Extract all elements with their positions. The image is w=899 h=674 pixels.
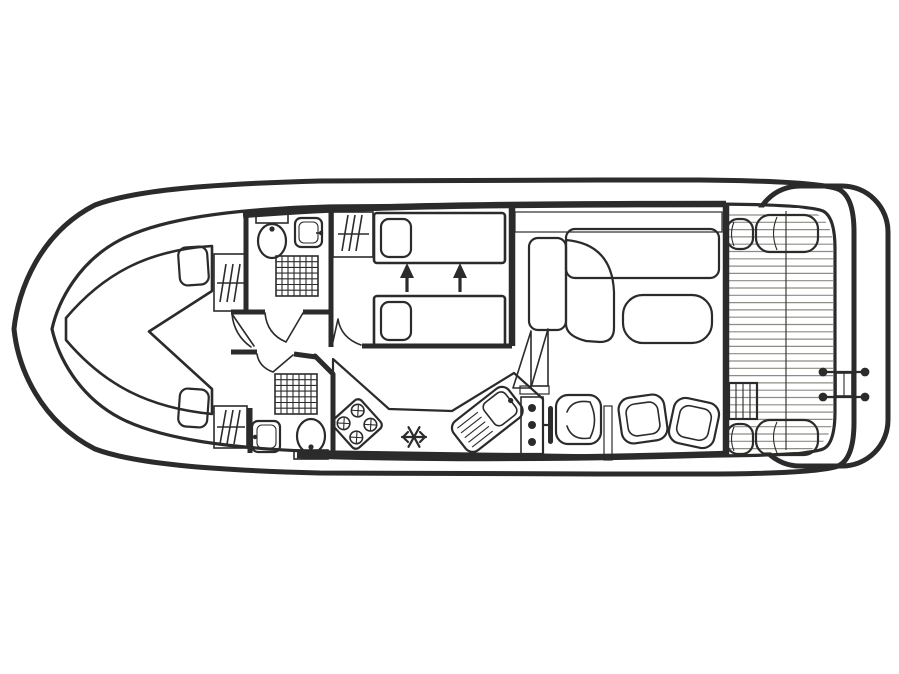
door-bathroom-fwd [265,313,303,342]
bathroom-mid [250,374,328,459]
hanger-icon [217,410,245,444]
fridge-snowflake-icon [402,427,426,447]
sink-unit [448,383,526,455]
bow-cabin [66,246,247,448]
dinette-chair [617,393,669,445]
toilet-hinge [269,226,274,231]
beds-slide-arrows [400,263,467,292]
saloon-table [623,295,712,343]
shower-grid [275,374,317,414]
faucet-dot [319,231,323,235]
sofa-back-section [566,229,719,278]
hob-4-burner [330,397,384,451]
pillow-twin-starboard [381,302,411,340]
toilet-hinge [308,444,313,449]
hanger-icon [217,264,245,302]
seat-cushion-line [675,404,713,442]
sofa-side-section [529,238,566,330]
hob-top [330,397,384,451]
instrument-dot [528,404,536,412]
sofa-corner-section [566,240,614,342]
door-twin-cabin [332,319,361,346]
washbasin-bowl [257,425,276,448]
sink-with-drainer [448,383,526,455]
seat-cushion-line [567,401,595,438]
companionway-steps [513,329,549,394]
galley [330,359,543,456]
steering-wheel-icon [548,406,553,444]
pillow-bow-starboard [178,388,210,428]
hanger-icon [338,215,369,251]
boat-deck-plan [0,0,899,674]
dinette-chair [667,396,722,451]
door-bow-cabin [232,314,254,347]
pillow-bow-port [178,246,210,286]
step-triangle [532,329,549,386]
arrow-head [453,263,467,278]
single-bed-starboard [374,296,505,346]
door-arcs [232,313,361,372]
bathroom-forward [256,214,323,296]
helm-seat [556,395,601,444]
saloon [515,212,722,343]
helm-dinette [521,393,721,460]
shower-grid [276,256,318,296]
twin-cabin [333,212,505,346]
door-bathroom-mid [257,354,293,372]
seat-cushion-line [625,401,661,437]
washbasin-bowl [299,222,318,243]
arrow-head [400,263,414,278]
galley-worktop [333,359,543,454]
instrument-dot [528,438,536,446]
single-bed-port [374,213,505,263]
wall-bathroom-mid-top [231,352,316,357]
partition-stub [604,406,612,460]
pillow-twin-port [381,219,411,257]
faucet-dot [253,435,257,439]
instrument-dot [528,421,536,429]
